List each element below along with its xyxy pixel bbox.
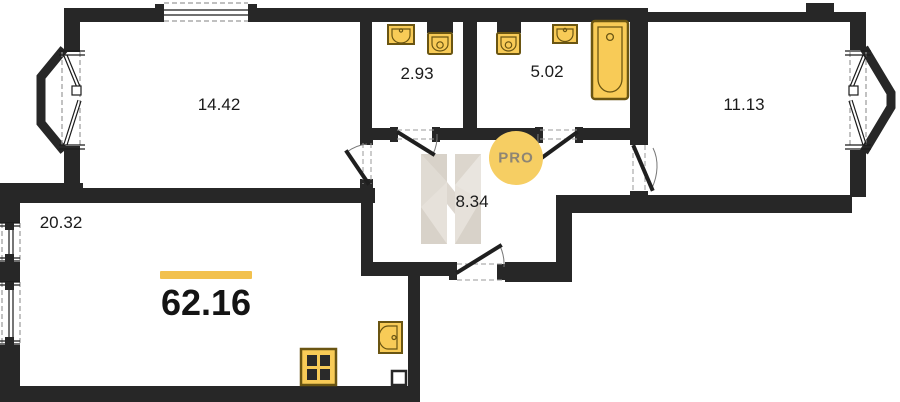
bay-window-right-wall [864, 48, 891, 152]
window-left-b [0, 282, 20, 345]
wall-top-step [806, 3, 834, 14]
area-label-bathroom: 5.02 [530, 62, 563, 82]
area-label-wc: 2.93 [400, 64, 433, 84]
area-label-hallway: 8.34 [455, 192, 488, 212]
wall-right-below-bay [850, 150, 866, 197]
wall-hall-right [556, 213, 572, 262]
toilet-icon [497, 33, 520, 54]
area-label-room-top-left: 14.42 [198, 95, 241, 115]
wall-room-right-bottom [556, 195, 852, 213]
wall-hall-top-3 [578, 128, 630, 140]
door-leaf-wc [399, 133, 433, 154]
wall-left-upper [0, 183, 20, 223]
wall-wc-bath-divider [463, 22, 477, 128]
total-area-label: 62.16 [161, 282, 251, 324]
wall-hall-left [361, 203, 373, 262]
area-label-living-kitchen: 20.32 [40, 213, 83, 233]
bathtub-icon [592, 21, 628, 99]
door-leaf-room-right [634, 147, 652, 189]
wall-top-middle [252, 8, 648, 22]
door-jamb [630, 191, 648, 199]
door-leaf-bathroom [543, 133, 576, 157]
bay-window-left-glyph [59, 51, 85, 156]
toilet-icon [428, 33, 452, 54]
window-left-a [0, 223, 20, 262]
wall-kitchen [408, 262, 420, 388]
kitchen-sink-icon [379, 322, 402, 353]
wall-hall-bottom-right [505, 262, 572, 282]
wall-living-top [83, 188, 375, 203]
floor-plan-drawing [0, 0, 900, 402]
wall-hall-bottom-left [361, 262, 457, 276]
window-top [155, 3, 257, 22]
total-area-accent-bar [160, 271, 252, 279]
toilet-cistern-stub [497, 22, 521, 33]
door-leaf-entrance [458, 246, 500, 272]
wall-bath-room-divider [630, 22, 648, 145]
toilet-cistern-stub [427, 22, 453, 33]
bay-window-left-wall [41, 49, 64, 151]
door-jamb [432, 127, 440, 142]
window-handle [849, 86, 858, 95]
door-jamb [630, 137, 648, 145]
area-label-room-top-right: 11.13 [723, 95, 764, 115]
window-handle [72, 86, 81, 95]
door-jamb [390, 127, 398, 142]
wall-bottom [0, 386, 420, 402]
door-leaf-room-left [347, 152, 368, 183]
sink-icon [388, 25, 414, 44]
vent-shaft [392, 371, 406, 385]
door-jamb [449, 262, 457, 280]
stove-icon [301, 349, 336, 385]
wall-room14-right [360, 22, 372, 143]
wall-window-pier [0, 262, 20, 282]
wall-left-above-bay [64, 8, 80, 52]
floor-plan: 14.42 2.93 5.02 11.13 8.34 20.32 62.16 P… [0, 0, 900, 402]
wall-right-above-bay [850, 12, 866, 50]
sink-icon [553, 25, 577, 43]
h-logo-crossbar [447, 182, 455, 214]
watermark-pro-text: PRO [498, 150, 534, 167]
